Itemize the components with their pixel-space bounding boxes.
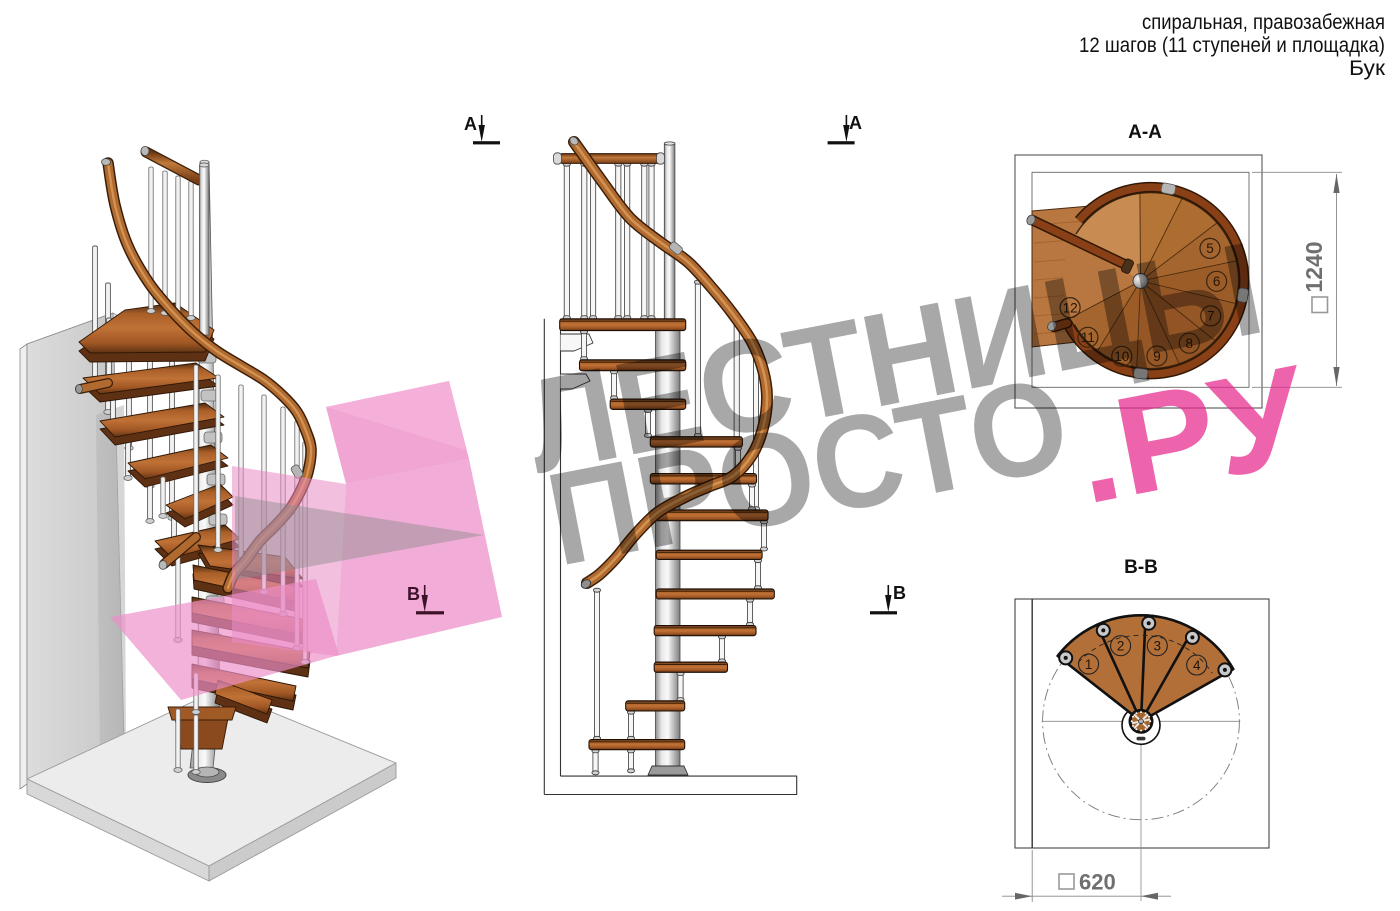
svg-text:3: 3 — [1154, 639, 1162, 654]
svg-text:4: 4 — [1193, 658, 1201, 673]
svg-text:A: A — [464, 114, 477, 134]
svg-text:спиральная, правозабежная: спиральная, правозабежная — [1142, 11, 1385, 34]
svg-text:2: 2 — [1117, 639, 1125, 654]
svg-text:1240: 1240 — [1301, 241, 1327, 292]
svg-text:A: A — [849, 113, 862, 133]
svg-text:Бук: Бук — [1349, 57, 1386, 80]
svg-text:A-A: A-A — [1128, 122, 1162, 143]
svg-text:B-B: B-B — [1124, 557, 1158, 578]
svg-text:B: B — [893, 583, 906, 603]
svg-text:12 шагов (11 ступеней и площад: 12 шагов (11 ступеней и площадка) — [1079, 34, 1385, 57]
svg-text:B: B — [407, 584, 420, 604]
svg-text:1: 1 — [1085, 657, 1093, 672]
svg-text:620: 620 — [1079, 870, 1116, 895]
